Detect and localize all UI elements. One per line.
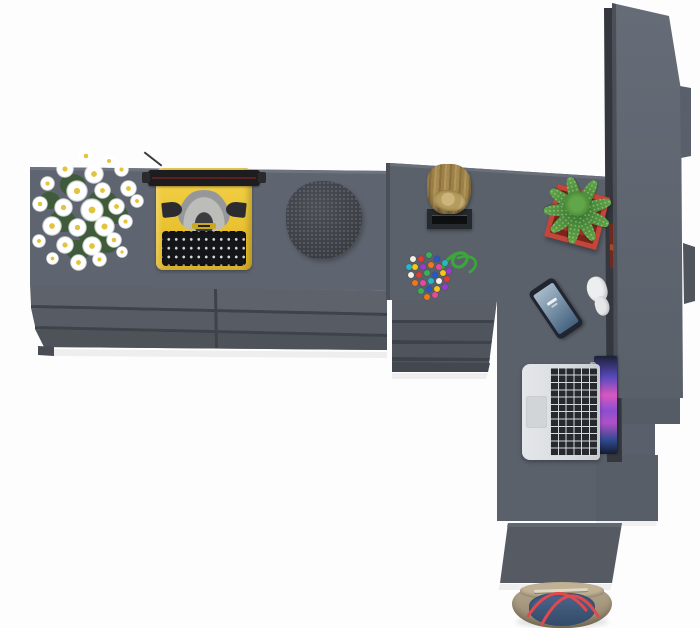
flower-bouquet (26, 146, 154, 282)
necklace-bead (410, 256, 416, 262)
necklace-bead (424, 270, 430, 276)
necklace-bead (418, 288, 424, 294)
typewriter-keyboard (162, 231, 246, 266)
phone-lockscreen-date (551, 303, 558, 309)
daisy-flower (84, 164, 104, 184)
wood-stump (424, 162, 476, 234)
necklace-bead (420, 280, 426, 286)
sideboard-foot (38, 346, 54, 356)
daisy-flower (78, 148, 94, 164)
wall-stand-slot (432, 215, 467, 224)
daisy-flower (92, 252, 107, 267)
laptop-keyboard (550, 368, 597, 456)
necklace-bead (432, 292, 438, 298)
wall-shelf-bump (683, 243, 695, 304)
return-drawer-bottom (392, 362, 490, 372)
bead-necklace (396, 242, 488, 300)
necklace-bead (444, 276, 450, 282)
scene-canvas (0, 0, 700, 628)
daisy-flower (56, 160, 74, 178)
necklace-bead (406, 264, 412, 270)
necklace-bead (412, 264, 418, 270)
daisy-flower (32, 196, 48, 212)
necklace-bead (434, 256, 440, 262)
earphone-cable (593, 294, 611, 317)
smartphone (528, 282, 584, 336)
necklace-bead (416, 272, 422, 278)
bag-strap (542, 596, 598, 624)
daisy-flower (108, 198, 125, 215)
bag-straps (512, 580, 612, 628)
desk-front-panel (500, 523, 622, 583)
necklace-bead (408, 272, 414, 278)
laptop (518, 350, 624, 464)
necklace-bead (428, 262, 434, 268)
daisy-flower (40, 176, 55, 191)
laptop-body (522, 364, 600, 460)
daisy-flower (116, 246, 128, 258)
daisy-flower (70, 254, 87, 271)
wall-shelf-bump (680, 86, 691, 158)
necklace-bead (424, 294, 430, 300)
necklace-bead (426, 252, 432, 258)
wall-shelf-top (612, 3, 683, 398)
floor-shadow (392, 373, 488, 379)
return-drawer-band (392, 300, 497, 320)
bead-cluster (398, 246, 454, 300)
daisy-flower (32, 234, 46, 248)
necklace-bead (446, 268, 452, 274)
typewriter-knob (142, 172, 150, 183)
necklace-bead (436, 278, 442, 284)
stump-log (427, 164, 471, 214)
desk-front-panel-edge (507, 523, 622, 527)
necklace-bead (432, 272, 438, 278)
daisy-flower (114, 162, 129, 177)
daisy-flower (130, 194, 144, 208)
typewriter-label (192, 223, 216, 229)
necklace-bead (436, 264, 442, 270)
floor-shadow (44, 349, 387, 358)
necklace-bead (426, 286, 432, 292)
necklace-bead (420, 264, 426, 270)
tote-bag (512, 580, 612, 628)
typewriter-carriage (148, 170, 260, 186)
daisy-flower (46, 252, 59, 265)
necklace-bead (442, 284, 448, 290)
daisy-flower (56, 236, 74, 254)
laptop-trackpad (526, 396, 547, 428)
daisy-flower (54, 198, 73, 217)
typewriter-knob (258, 172, 266, 183)
daisy-flower (66, 180, 88, 202)
necklace-bead (428, 278, 434, 284)
typewriter-carriage-line (152, 177, 256, 179)
return-drawer-seam (392, 320, 494, 323)
shelf-step (596, 455, 658, 521)
daisy-flower (118, 214, 133, 229)
cactus-planter (542, 164, 614, 254)
necklace-bead (442, 260, 448, 266)
necklace-bead (412, 280, 418, 286)
daisy-flower (94, 182, 111, 199)
necklace-bead (418, 256, 424, 262)
typewriter (156, 164, 254, 274)
cactus-core (564, 192, 590, 216)
stump-cut-face (432, 188, 468, 213)
phone-body (528, 276, 585, 340)
phone-screen (533, 282, 579, 334)
daisy-flower (42, 216, 62, 236)
typewriter-label-text (198, 225, 210, 227)
daisy-flower (68, 218, 87, 237)
